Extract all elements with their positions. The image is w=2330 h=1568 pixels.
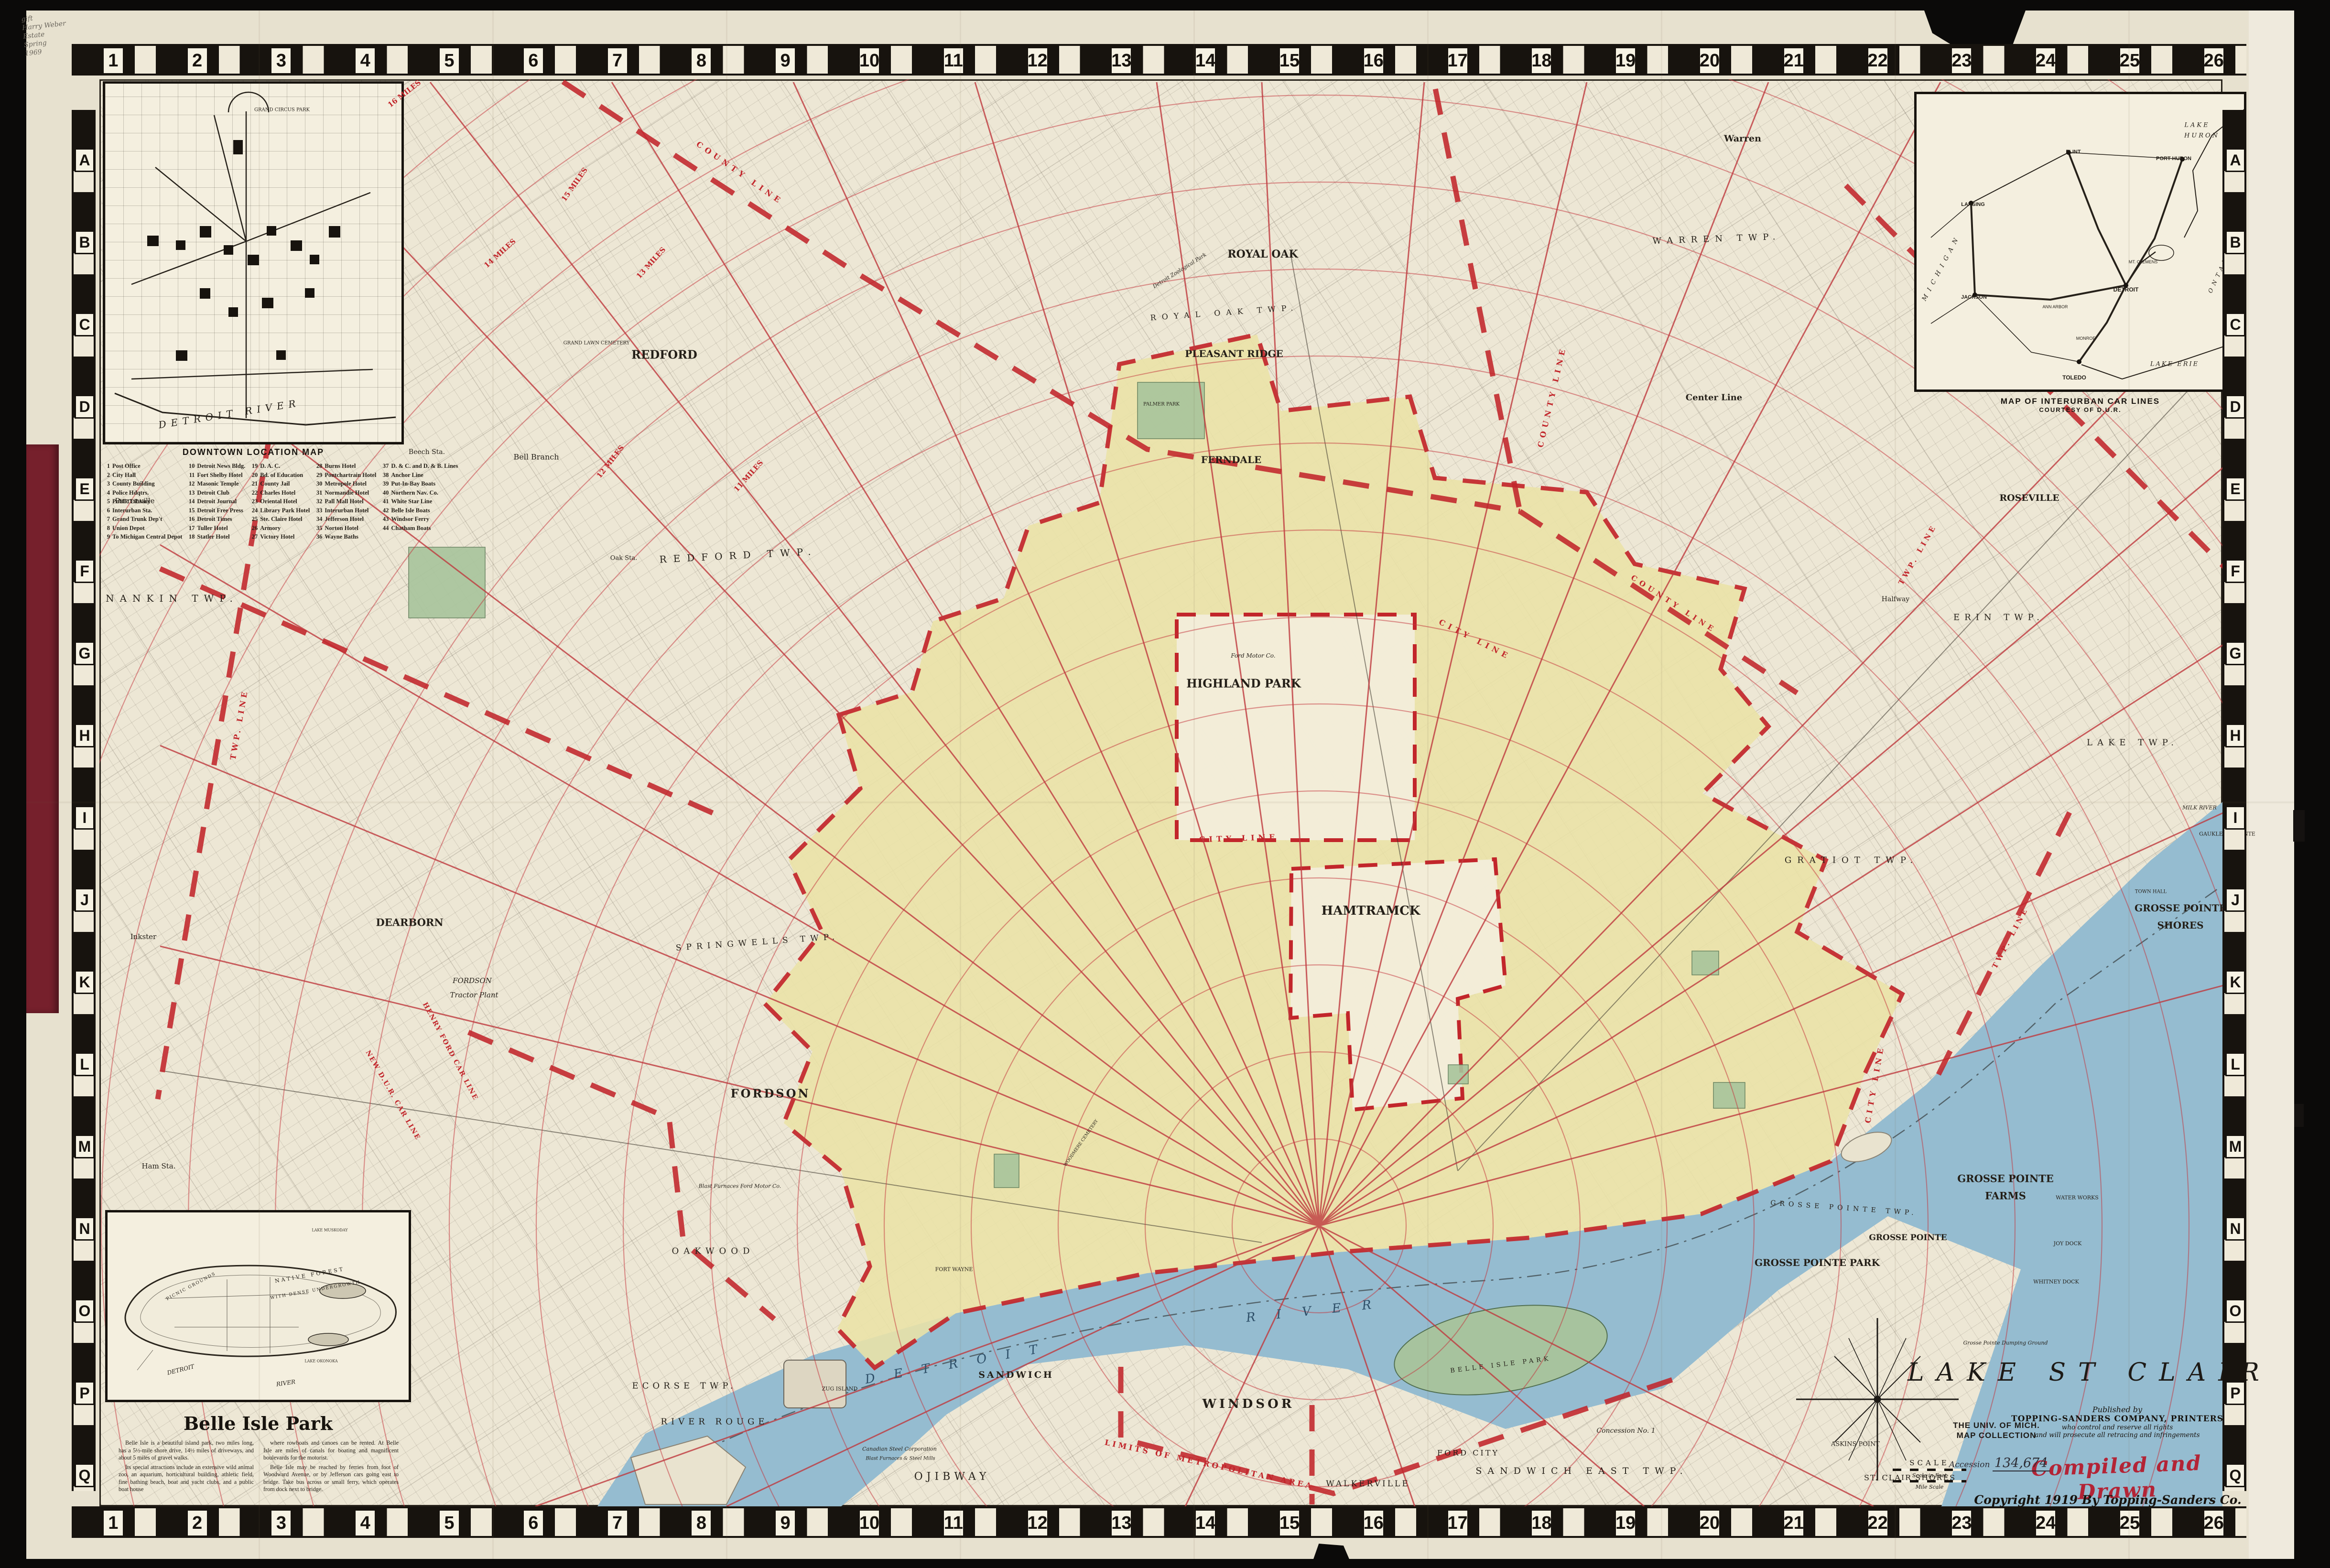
- legend-label: Union Depot: [112, 525, 145, 531]
- legend-number: 31: [314, 488, 322, 497]
- interurban-inset-graphics: [1917, 94, 2244, 389]
- belle-isle-inset: [105, 1210, 411, 1402]
- grid-letter-b: B: [2225, 230, 2245, 254]
- legend-item-11: 11Fort Shelby Hotel: [186, 471, 245, 480]
- legend-item-4: 4Police Hdqtrs.: [101, 488, 182, 497]
- legend-label: Detroit Club: [197, 489, 229, 496]
- legend-column-3: 19D. A. C.20Bd. of Education21County Jai…: [249, 462, 310, 541]
- legend-number: 5: [101, 497, 110, 506]
- belle-isle-paragraph: Its special attractions include an exten…: [119, 1464, 254, 1493]
- grid-number-25: 25: [2119, 47, 2141, 75]
- legend-item-19: 19D. A. C.: [249, 462, 310, 471]
- legend-number: 34: [314, 515, 322, 524]
- interurban-caption-line1: MAP OF INTERURBAN CAR LINES: [1914, 397, 2246, 406]
- scale-mile-label: Mile Scale: [1889, 1484, 1970, 1490]
- legend-label: Ste. Claire Hotel: [260, 516, 302, 522]
- legend-number: 38: [380, 471, 389, 480]
- legend-number: 22: [249, 488, 258, 497]
- legend-number: 40: [380, 488, 389, 497]
- legend-number: 29: [314, 471, 322, 480]
- sheet-right-margin: [2249, 11, 2294, 1559]
- legend-item-10: 10Detroit News Bldg.: [186, 462, 245, 471]
- grid-number-14: 14: [1194, 47, 1216, 75]
- legend-number: 39: [380, 479, 389, 488]
- legend-item-8: 8Union Depot: [101, 524, 182, 533]
- interurban-caption-line2: COURTESY OF D.U.R.: [1914, 406, 2246, 413]
- legend-item-23: 23Oriental Hotel: [249, 497, 310, 506]
- legend-label: To Michigan Central Depot: [112, 533, 182, 540]
- legend-item-3: 3County Building: [101, 479, 182, 488]
- legend-label: Tuller Hotel: [197, 525, 228, 531]
- legend-label: Put-In-Bay Boats: [391, 480, 435, 487]
- grid-number-7: 7: [607, 47, 629, 75]
- grid-letter-h: H: [2225, 724, 2245, 747]
- grid-number-22: 22: [1867, 47, 1889, 75]
- legend-item-15: 15Detroit Free Press: [186, 506, 245, 515]
- legend-number: 1: [101, 462, 110, 471]
- scale-bar-mile: [1893, 1480, 1966, 1482]
- legend-label: Bd. of Education: [260, 472, 303, 478]
- legend-item-9: 9To Michigan Central Depot: [101, 532, 182, 541]
- grid-number-13: 13: [1110, 1509, 1132, 1537]
- legend-label: Armory: [260, 525, 281, 531]
- legend-number: 10: [186, 462, 195, 471]
- grid-number-18: 18: [1530, 47, 1552, 75]
- legend-number: 27: [249, 532, 258, 541]
- map-area: [99, 79, 2222, 1506]
- legend-item-36: 36Wayne Baths: [314, 532, 376, 541]
- grid-number-6: 6: [522, 1509, 544, 1537]
- legend-number: 35: [314, 524, 322, 533]
- grid-number-11: 11: [943, 47, 965, 75]
- grid-letter-q: Q: [75, 1463, 95, 1487]
- grid-number-23: 23: [1951, 1509, 1972, 1537]
- grid-number-18: 18: [1530, 1509, 1552, 1537]
- grid-letter-g: G: [75, 641, 95, 665]
- copyright-line: Copyright 1919 By Topping-Sanders Co.: [1974, 1493, 2242, 1507]
- legend-label: D. A. C.: [260, 463, 280, 469]
- grid-number-8: 8: [690, 47, 712, 75]
- grid-number-21: 21: [1783, 1509, 1805, 1537]
- interurban-inset-caption: MAP OF INTERURBAN CAR LINES COURTESY OF …: [1914, 397, 2246, 413]
- legend-number: 13: [186, 488, 195, 497]
- legend-label: Metropole Hotel: [325, 480, 367, 487]
- legend-item-6: 6Interurban Sta.: [101, 506, 182, 515]
- legend-number: 3: [101, 479, 110, 488]
- legend-number: 21: [249, 479, 258, 488]
- grid-number-7: 7: [607, 1509, 629, 1537]
- grid-letter-a: A: [75, 148, 95, 172]
- legend-label: Public Library: [112, 498, 151, 505]
- grid-letter-c: C: [75, 313, 95, 336]
- grid-number-10: 10: [858, 1509, 880, 1537]
- grid-letter-o: O: [2225, 1299, 2245, 1323]
- legend-item-25: 25Ste. Claire Hotel: [249, 515, 310, 524]
- legend-item-28: 28Burns Hotel: [314, 462, 376, 471]
- grid-number-3: 3: [270, 47, 292, 75]
- legend-item-41: 41White Star Line: [380, 497, 458, 506]
- legend-item-29: 29Pontchartrain Hotel: [314, 471, 376, 480]
- legend-number: 7: [101, 515, 110, 524]
- grid-number-26: 26: [2203, 47, 2225, 75]
- accession-number: 134,674: [1993, 1456, 2050, 1471]
- grid-number-20: 20: [1699, 1509, 1721, 1537]
- legend-item-12: 12Masonic Temple: [186, 479, 245, 488]
- legend-number: 44: [380, 524, 389, 533]
- grid-number-16: 16: [1363, 1509, 1385, 1537]
- legend-label: Library Park Hotel: [260, 507, 310, 514]
- library-stamp: THE UNIV. OF MICH. MAP COLLECTION: [1951, 1420, 2042, 1440]
- legend-label: Burns Hotel: [325, 463, 356, 469]
- published-by-label: Published by: [1998, 1405, 2237, 1414]
- legend-label: D. & C. and D. & B. Lines: [391, 463, 458, 469]
- legend-item-17: 17Tuller Hotel: [186, 524, 245, 533]
- legend-number: 20: [249, 471, 258, 480]
- legend-label: Detroit News Bldg.: [197, 463, 245, 469]
- legend-column-5: 37D. & C. and D. & B. Lines38Anchor Line…: [380, 462, 458, 541]
- grid-letter-q: Q: [2225, 1463, 2245, 1487]
- legend-label: Detroit Journal: [197, 498, 237, 505]
- grid-number-22: 22: [1867, 1509, 1889, 1537]
- grid-number-4: 4: [354, 47, 376, 75]
- grid-number-21: 21: [1783, 47, 1805, 75]
- legend-number: 24: [249, 506, 258, 515]
- grid-letter-n: N: [75, 1217, 95, 1241]
- legend-item-5: 5Public Library: [101, 497, 182, 506]
- legend-label: Masonic Temple: [197, 480, 238, 487]
- legend-label: Interurban Sta.: [112, 507, 152, 514]
- legend-label: Chatham Boats: [391, 525, 431, 531]
- grid-band-left: ABCDEFGHIJKLMNOPQ: [72, 110, 96, 1491]
- grid-letter-p: P: [75, 1381, 95, 1405]
- legend-label: City Hall: [112, 472, 136, 478]
- legend-number: 15: [186, 506, 195, 515]
- grid-letter-f: F: [2225, 559, 2245, 583]
- grid-number-19: 19: [1615, 1509, 1636, 1537]
- belle-isle-paragraph: where rowboats and canoes can be rented.…: [263, 1439, 399, 1462]
- grid-number-3: 3: [270, 1509, 292, 1537]
- grid-number-11: 11: [943, 1509, 965, 1537]
- legend-label: Charles Hotel: [260, 489, 295, 496]
- legend-number: 25: [249, 515, 258, 524]
- legend-item-16: 16Detroit Times: [186, 515, 245, 524]
- legend-item-42: 42Belle Isle Boats: [380, 506, 458, 515]
- grid-number-16: 16: [1363, 47, 1385, 75]
- legend-column-2: 10Detroit News Bldg.11Fort Shelby Hotel1…: [186, 462, 245, 541]
- legend-number: 8: [101, 524, 110, 533]
- legend-item-33: 33Interurban Hotel: [314, 506, 376, 515]
- grid-number-15: 15: [1279, 1509, 1300, 1537]
- scale-bar-feet: [1893, 1469, 1966, 1471]
- legend-label: Victory Hotel: [260, 533, 294, 540]
- legend-item-31: 31Normandie Hotel: [314, 488, 376, 497]
- legend-item-18: 18Statler Hotel: [186, 532, 245, 541]
- grid-number-15: 15: [1279, 47, 1300, 75]
- grid-letter-d: D: [75, 395, 95, 419]
- grid-letter-l: L: [2225, 1052, 2245, 1076]
- legend-item-14: 14Detroit Journal: [186, 497, 245, 506]
- belle-isle-text-col1: Belle Isle is a beautiful island park, t…: [119, 1439, 254, 1495]
- legend-label: Pall Mall Hotel: [325, 498, 363, 505]
- legend-label: Interurban Hotel: [325, 507, 368, 514]
- grid-letter-o: O: [75, 1299, 95, 1323]
- legend-number: 6: [101, 506, 110, 515]
- legend-number: 11: [186, 471, 195, 480]
- grid-letter-a: A: [2225, 148, 2245, 172]
- grid-number-20: 20: [1699, 47, 1721, 75]
- grid-letter-k: K: [75, 970, 95, 994]
- grid-number-2: 2: [186, 47, 208, 75]
- legend-label: Detroit Free Press: [197, 507, 243, 514]
- grid-number-24: 24: [2035, 1509, 2057, 1537]
- legend-item-1: 1Post Office: [101, 462, 182, 471]
- legend-label: Belle Isle Boats: [391, 507, 430, 514]
- legend-item-35: 35Norton Hotel: [314, 524, 376, 533]
- grid-letter-i: I: [2225, 806, 2245, 830]
- legend-item-24: 24Library Park Hotel: [249, 506, 310, 515]
- legend-item-7: 7Grand Trunk Dep't: [101, 515, 182, 524]
- downtown-building-blocks: [147, 140, 340, 361]
- legend-label: Wayne Baths: [325, 533, 358, 540]
- downtown-inset-title: DOWNTOWN LOCATION MAP: [103, 447, 404, 457]
- grid-number-17: 17: [1447, 47, 1469, 75]
- downtown-inset-graphics: [105, 84, 401, 442]
- legend-label: Anchor Line: [391, 472, 423, 478]
- legend-number: 18: [186, 532, 195, 541]
- grid-number-9: 9: [774, 47, 796, 75]
- scale-block: SCALE Scale in Feet Mile Scale: [1889, 1459, 1970, 1490]
- legend-item-21: 21County Jail: [249, 479, 310, 488]
- legend-number: 33: [314, 506, 322, 515]
- legend-number: 43: [380, 515, 389, 524]
- stamp-line1: THE UNIV. OF MICH.: [1951, 1420, 2042, 1430]
- legend-item-27: 27Victory Hotel: [249, 532, 310, 541]
- edge-mark: [2293, 810, 2305, 842]
- legend-item-40: 40Northern Nav. Co.: [380, 488, 458, 497]
- grid-letter-e: E: [2225, 477, 2245, 501]
- legend-label: White Star Line: [391, 498, 432, 505]
- belle-isle-text-col2: where rowboats and canoes can be rented.…: [263, 1439, 399, 1495]
- legend-label: Norton Hotel: [325, 525, 358, 531]
- grid-letter-l: L: [75, 1052, 95, 1076]
- grid-number-8: 8: [690, 1509, 712, 1537]
- legend-label: Oriental Hotel: [260, 498, 297, 505]
- belle-isle-inset-graphics: [108, 1212, 409, 1400]
- grid-letter-k: K: [2225, 970, 2245, 994]
- belle-isle-title: Belle Isle Park: [105, 1413, 411, 1434]
- grid-number-4: 4: [354, 1509, 376, 1537]
- grid-number-5: 5: [438, 47, 460, 75]
- legend-label: Police Hdqtrs.: [112, 489, 149, 496]
- grid-letter-c: C: [2225, 313, 2245, 336]
- legend-number: 9: [101, 532, 110, 541]
- grid-number-12: 12: [1027, 1509, 1049, 1537]
- legend-item-20: 20Bd. of Education: [249, 471, 310, 480]
- legend-label: Detroit Times: [197, 516, 232, 522]
- legend-label: Post Office: [112, 463, 141, 469]
- belle-isle-paragraph: Belle Isle is a beautiful island park, t…: [119, 1439, 254, 1462]
- legend-label: Grand Trunk Dep't: [112, 516, 162, 522]
- legend-number: 16: [186, 515, 195, 524]
- grid-letter-d: D: [2225, 395, 2245, 419]
- scale-title: SCALE: [1889, 1459, 1970, 1467]
- legend-column-1: 1Post Office2City Hall3County Building4P…: [101, 462, 182, 541]
- grid-number-26: 26: [2203, 1509, 2225, 1537]
- legend-number: 37: [380, 462, 389, 471]
- grid-letter-i: I: [75, 806, 95, 830]
- legend-number: 14: [186, 497, 195, 506]
- legend-item-38: 38Anchor Line: [380, 471, 458, 480]
- legend-item-22: 22Charles Hotel: [249, 488, 310, 497]
- legend-item-32: 32Pall Mall Hotel: [314, 497, 376, 506]
- grid-number-23: 23: [1951, 47, 1972, 75]
- grid-number-1: 1: [102, 1509, 124, 1537]
- belle-isle-paragraph: Belle Isle may be reached by ferries fro…: [263, 1464, 399, 1493]
- legend-item-37: 37D. & C. and D. & B. Lines: [380, 462, 458, 471]
- legend-label: Northern Nav. Co.: [391, 489, 438, 496]
- grid-letter-p: P: [2225, 1381, 2245, 1405]
- legend-number: 26: [249, 524, 258, 533]
- legend-item-44: 44Chatham Boats: [380, 524, 458, 533]
- legend-number: 12: [186, 479, 195, 488]
- downtown-location-inset: [103, 81, 404, 444]
- legend-number: 4: [101, 488, 110, 497]
- legend-label: Pontchartrain Hotel: [325, 472, 376, 478]
- legend-item-43: 43Windsor Ferry: [380, 515, 458, 524]
- legend-number: 2: [101, 471, 110, 480]
- grid-letter-f: F: [75, 559, 95, 583]
- legend-number: 17: [186, 524, 195, 533]
- legend-number: 42: [380, 506, 389, 515]
- grid-number-6: 6: [522, 47, 544, 75]
- grid-number-12: 12: [1027, 47, 1049, 75]
- legend-item-34: 34Jefferson Hotel: [314, 515, 376, 524]
- grid-number-5: 5: [438, 1509, 460, 1537]
- interurban-inset: [1914, 92, 2246, 392]
- grid-number-25: 25: [2119, 1509, 2141, 1537]
- legend-label: Fort Shelby Hotel: [197, 472, 242, 478]
- grid-letter-h: H: [75, 724, 95, 747]
- scale-feet-label: Scale in Feet: [1889, 1472, 1970, 1479]
- grid-letter-m: M: [75, 1135, 95, 1158]
- legend-label: Windsor Ferry: [391, 516, 429, 522]
- pencil-gift-note: giftHarry WeberEstateSpring1969: [21, 10, 78, 58]
- legend-item-30: 30Metropole Hotel: [314, 479, 376, 488]
- grid-letter-g: G: [2225, 641, 2245, 665]
- grid-band-right: ABCDEFGHIJKLMNOPQ: [2222, 110, 2246, 1491]
- edge-mark: [2294, 1104, 2304, 1127]
- grid-letter-m: M: [2225, 1135, 2245, 1158]
- legend-number: 30: [314, 479, 322, 488]
- stamp-line2: MAP COLLECTION: [1951, 1430, 2042, 1440]
- legend-number: 41: [380, 497, 389, 506]
- legend-item-26: 26Armory: [249, 524, 310, 533]
- grid-number-2: 2: [186, 1509, 208, 1537]
- grid-number-10: 10: [858, 47, 880, 75]
- photo-backdrop: DOWNTOWN LOCATION MAP 1Post Office2City …: [0, 0, 2330, 1568]
- legend-item-39: 39Put-In-Bay Boats: [380, 479, 458, 488]
- downtown-legend: 1Post Office2City Hall3County Building4P…: [101, 462, 439, 541]
- legend-item-2: 2City Hall: [101, 471, 182, 480]
- legend-column-4: 28Burns Hotel29Pontchartrain Hotel30Metr…: [314, 462, 376, 541]
- maroon-backing-strip: [26, 444, 59, 1013]
- legend-label: Jefferson Hotel: [325, 516, 364, 522]
- grid-number-1: 1: [102, 47, 124, 75]
- grid-number-14: 14: [1194, 1509, 1216, 1537]
- grid-number-17: 17: [1447, 1509, 1469, 1537]
- legend-number: 28: [314, 462, 322, 471]
- legend-number: 19: [249, 462, 258, 471]
- grid-number-19: 19: [1615, 47, 1636, 75]
- grid-band-top: 1234567891011121314151617181920212223242…: [72, 44, 2246, 76]
- grid-number-13: 13: [1110, 47, 1132, 75]
- grid-band-bottom: 1234567891011121314151617181920212223242…: [72, 1506, 2246, 1538]
- grid-letter-j: J: [2225, 888, 2245, 912]
- legend-label: County Jail: [260, 480, 290, 487]
- legend-label: County Building: [112, 480, 155, 487]
- grid-letter-e: E: [75, 477, 95, 501]
- grid-number-24: 24: [2035, 47, 2057, 75]
- legend-number: 32: [314, 497, 322, 506]
- legend-label: Normandie Hotel: [325, 489, 369, 496]
- legend-number: 23: [249, 497, 258, 506]
- legend-item-13: 13Detroit Club: [186, 488, 245, 497]
- grid-letter-j: J: [75, 888, 95, 912]
- grid-letter-b: B: [75, 230, 95, 254]
- grid-letter-n: N: [2225, 1217, 2245, 1241]
- belle-isle-text: Belle Isle is a beautiful island park, t…: [119, 1439, 399, 1495]
- legend-number: 36: [314, 532, 322, 541]
- grid-number-9: 9: [774, 1509, 796, 1537]
- legend-label: Statler Hotel: [197, 533, 229, 540]
